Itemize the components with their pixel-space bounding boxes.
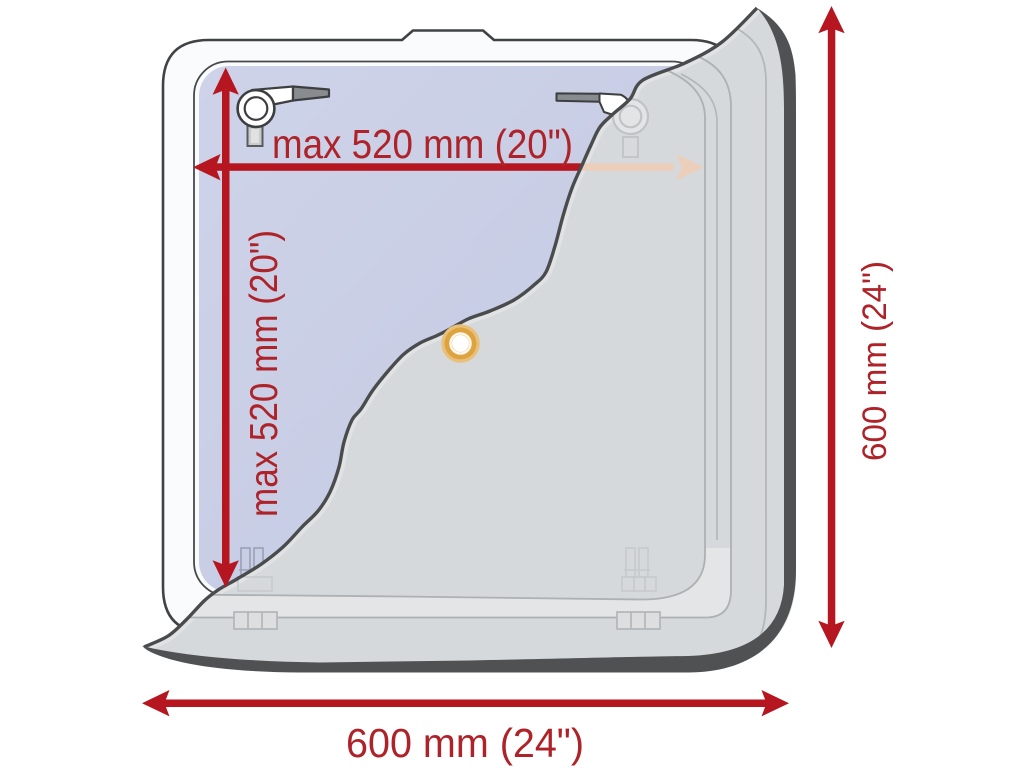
svg-text:600 mm (24"): 600 mm (24") <box>346 720 584 766</box>
svg-text:max 520 mm (20"): max 520 mm (20") <box>243 230 286 517</box>
svg-text:max 520 mm (20"): max 520 mm (20") <box>272 121 573 167</box>
svg-text:600 mm (24"): 600 mm (24") <box>856 261 894 461</box>
